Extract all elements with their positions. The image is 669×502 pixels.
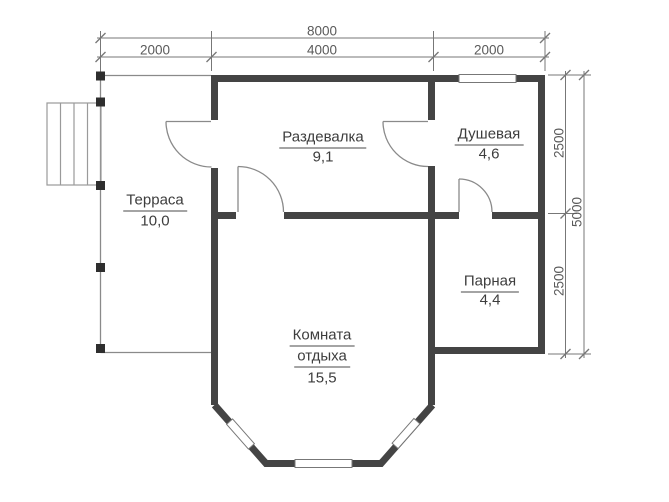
dim-label-shower-width: 2000 (474, 43, 504, 57)
room-name-shower: Душевая (455, 126, 524, 146)
room-name-rest-room-line1: Комната (290, 327, 355, 347)
dim-label-terrace-width: 2000 (140, 43, 170, 57)
window-bay-left (227, 419, 255, 449)
door-shower-to-steamroom (459, 179, 492, 212)
window-shower (459, 75, 516, 83)
room-label-shower: Душевая (455, 127, 524, 142)
dim-label-total-height: 5000 (570, 197, 584, 227)
window-bay-bottom (295, 460, 352, 468)
door-terrace-entrance (166, 122, 212, 168)
room-name-rest-room-line2: отдыха (294, 348, 350, 368)
room-label-rest-room-line1: Комната (290, 328, 355, 343)
dim-label-dressing-width: 4000 (307, 43, 337, 57)
floor-plan-canvas: 8000 2000 4000 2000 2500 5000 2500 Терра… (0, 0, 669, 502)
room-area-dressing-room: 9,1 (313, 150, 334, 165)
room-name-terrace: Терраса (123, 192, 187, 212)
room-area-steam-room: 4,4 (480, 293, 501, 308)
dim-label-total-width: 8000 (307, 24, 337, 38)
door-dressing-to-restroom (238, 167, 284, 213)
dim-label-upper-right-height: 2500 (552, 128, 566, 158)
room-area-terrace: 10,0 (140, 214, 169, 229)
room-label-steam-room: Парная (461, 274, 519, 289)
room-name-steam-room: Парная (461, 273, 519, 293)
room-label-dressing-room: Раздевалка (279, 130, 366, 145)
floor-plan-drawing (0, 0, 669, 502)
room-label-terrace: Терраса (123, 193, 187, 208)
room-area-shower: 4,6 (479, 147, 500, 162)
window-bay-right (392, 418, 420, 448)
room-name-dressing-room: Раздевалка (279, 129, 366, 149)
dim-label-lower-right-height: 2500 (552, 266, 566, 296)
walls (211, 75, 545, 405)
door-dressing-to-shower (383, 122, 428, 167)
terrace-stairs (47, 103, 101, 185)
room-area-rest-room: 15,5 (307, 371, 336, 386)
room-label-rest-room-line2: отдыха (294, 349, 350, 364)
